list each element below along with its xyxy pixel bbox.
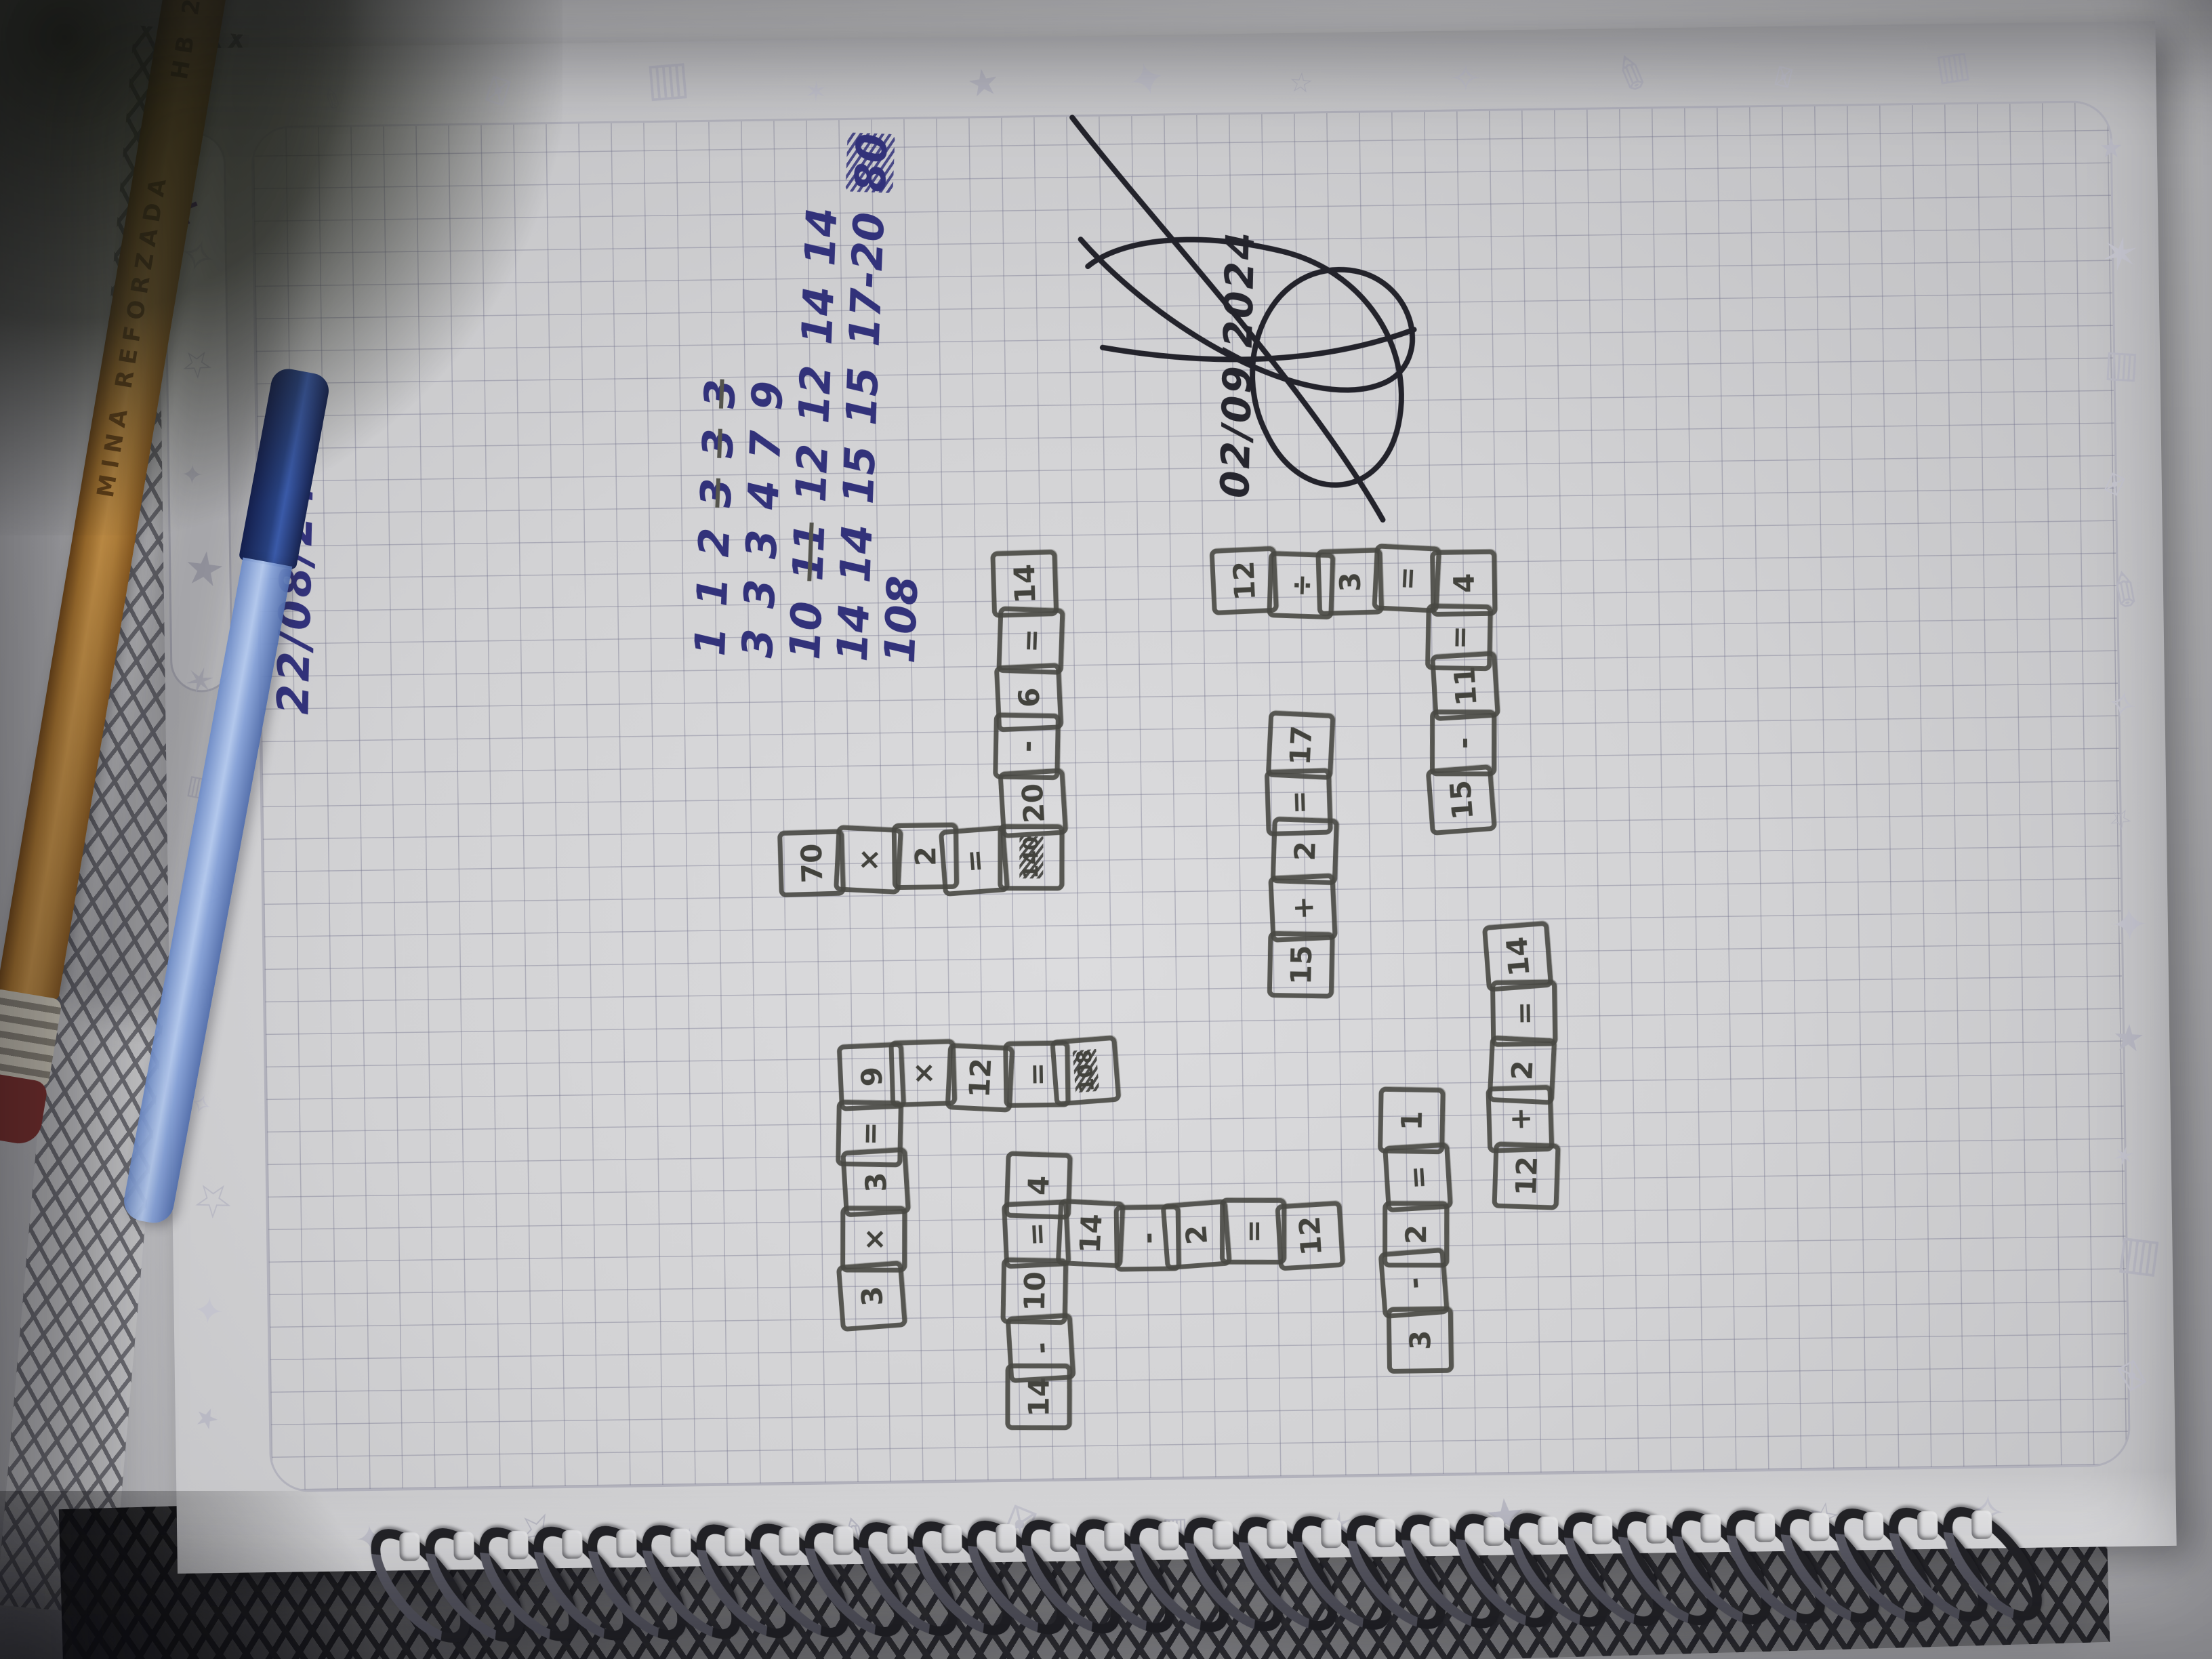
border-doodle-pencil-icon: ✏ [2100,565,2152,612]
puzzle-token: - [1010,740,1043,752]
punched-hole [1212,1521,1233,1549]
border-doodle-envelope-icon: ✉ [1769,63,1801,91]
puzzle-token: = [1400,1164,1435,1190]
puzzle-token: 3 [859,1171,893,1193]
puzzle-token: 10 [1017,1271,1051,1311]
math-crossword-puzzle: 3×3=9×12=10814-10=470×2=14020-6=1414-2=1… [776,503,1617,1544]
border-doodle-pencil-icon: ✏ [1604,45,1662,98]
answer-number: 14 [795,207,844,267]
border-doodle-book-icon: ▤ [640,59,690,106]
answer-number: 3 [693,428,741,459]
puzzle-token: ÷ [1284,573,1318,598]
corner-shadow-bottomleft [0,1491,508,1659]
border-doodle-star-icon: ✶ [800,75,834,107]
puzzle-token: 14 [1500,935,1536,977]
punched-hole [1863,1512,1884,1540]
puzzle-token: 14 [1022,1377,1055,1417]
punched-hole [724,1528,745,1556]
puzzle-token: 3 [855,1285,889,1307]
punched-hole [1483,1517,1504,1546]
border-doodle-sparkle-icon: ✦ [2108,904,2155,944]
puzzle-cell: 1 [1378,1087,1446,1155]
answer-number: 4 [738,479,787,510]
puzzle-token: 2 [1179,1224,1214,1246]
puzzle-token: 2 [1505,1059,1539,1081]
border-doodle-book-icon: ▤ [1930,49,1971,89]
punched-hole [1267,1520,1288,1549]
puzzle-token: = [1507,1001,1540,1025]
puzzle-token: = [1389,566,1424,592]
answer-number: 15 [836,366,886,426]
answer-number: 1 [685,626,734,657]
puzzle-token: 108 [1072,1049,1099,1093]
puzzle-token: 14 [1007,563,1042,604]
puzzle-token: = [1014,628,1048,653]
answer-number: 2 [689,527,738,558]
puzzle-token: × [857,1227,890,1251]
puzzle-token: - [1131,1232,1164,1244]
puzzle-token: 15 [1284,945,1318,985]
puzzle-token: × [851,847,886,873]
puzzle-token: = [853,1122,886,1146]
puzzle-token: - [1023,1341,1057,1355]
puzzle-token: × [906,1061,940,1086]
punched-hole [1375,1519,1396,1547]
puzzle-token: 2 [1399,1225,1433,1244]
puzzle-token: 2 [1288,840,1322,861]
photo-of-notebook: ✕ 22/08/24 11233333347910111212141414141… [0,0,2212,1659]
puzzle-token: 140 [1019,836,1043,879]
puzzle-token: 2 [909,846,942,867]
punched-hole [996,1524,1017,1553]
puzzle-cell: 17 [1266,710,1336,780]
punched-hole [1050,1523,1071,1552]
puzzle-token: - [1397,1276,1431,1290]
punched-hole [1158,1521,1179,1550]
punched-hole [1700,1514,1721,1542]
punched-hole [1917,1511,1938,1540]
punched-hole [1321,1519,1342,1548]
punched-hole [1429,1518,1450,1547]
answer-number: 12 [789,364,838,424]
puzzle-token: 12 [962,1057,998,1099]
punched-hole [616,1530,637,1558]
answer-number: 3 [735,578,783,609]
border-doodle-sparkle-icon: ✦ [190,1293,230,1328]
puzzle-cell: 108 [1050,1036,1121,1107]
answer-number: 12 [786,443,836,503]
puzzle-token: 3 [1404,1330,1437,1350]
puzzle-token: = [1282,790,1315,815]
puzzle-token: = [1020,1062,1053,1086]
border-doodle-star-icon: ★ [188,1401,224,1436]
puzzle-token: 20 [1015,783,1050,824]
punched-hole [833,1526,854,1555]
puzzle-cell: = [1425,604,1493,672]
corner-shadow-topleft [0,0,562,535]
puzzle-token: 70 [794,843,829,884]
puzzle-cell: 12 [1275,1201,1345,1271]
puzzle-cell: 14 [990,550,1059,618]
puzzle-token: 4 [1021,1175,1055,1196]
answer-number: 1 [687,577,736,608]
border-doodle-star-outline-icon: ☆ [185,1174,241,1227]
puzzle-token: = [1019,1222,1054,1247]
border-doodle-book-icon: ▤ [2110,1232,2162,1281]
punched-hole [1592,1515,1613,1544]
puzzle-token: 12 [1292,1215,1328,1256]
punched-hole [670,1528,691,1557]
puzzle-token: 11 [1448,665,1483,707]
punched-hole [1809,1513,1830,1541]
border-doodle-sparkle-icon: ✧ [1448,62,1485,93]
puzzle-token: = [957,848,992,874]
punched-hole [941,1525,962,1553]
answer-number: 7 [740,430,789,461]
answer-number: 3 [733,628,781,659]
puzzle-token: + [1286,895,1320,920]
punched-hole [1646,1515,1667,1543]
punched-hole [1755,1513,1776,1542]
puzzle-token: - [1447,737,1480,750]
puzzle-token: 3 [1333,571,1367,592]
puzzle-token: 6 [1012,687,1046,708]
answer-number: 9 [742,380,791,411]
puzzle-token: 1 [1395,1110,1429,1130]
puzzle-token: = [1442,625,1476,649]
puzzle-token: 14 [1073,1213,1108,1254]
puzzle-token: = [1237,1219,1270,1243]
puzzle-token: 15 [1443,779,1479,821]
answer-number: 3 [695,378,743,409]
puzzle-token: 17 [1283,724,1318,766]
puzzle-cell: 14 [1482,921,1553,992]
answer-number: 17-20 [840,211,893,348]
punched-hole [1104,1522,1125,1551]
punched-hole [508,1531,529,1559]
answer-number: 3 [691,477,739,508]
puzzle-token: 9 [855,1066,888,1087]
answer-number: 15 [834,445,883,505]
punched-hole [562,1530,583,1559]
punched-hole [1538,1517,1559,1545]
punched-hole [779,1527,800,1555]
border-doodle-book-icon: ▤ [2100,348,2138,385]
puzzle-token: + [1503,1107,1537,1132]
answer-number: 14 [792,285,842,346]
border-doodle-star-icon: ★ [962,64,1004,102]
answer-number: 80 [845,133,895,193]
puzzle-token: 12 [1509,1155,1544,1196]
puzzle-token: 12 [1227,560,1262,602]
punched-hole [887,1525,908,1554]
puzzle-token: 4 [1447,573,1480,593]
punched-hole [1971,1511,1992,1539]
